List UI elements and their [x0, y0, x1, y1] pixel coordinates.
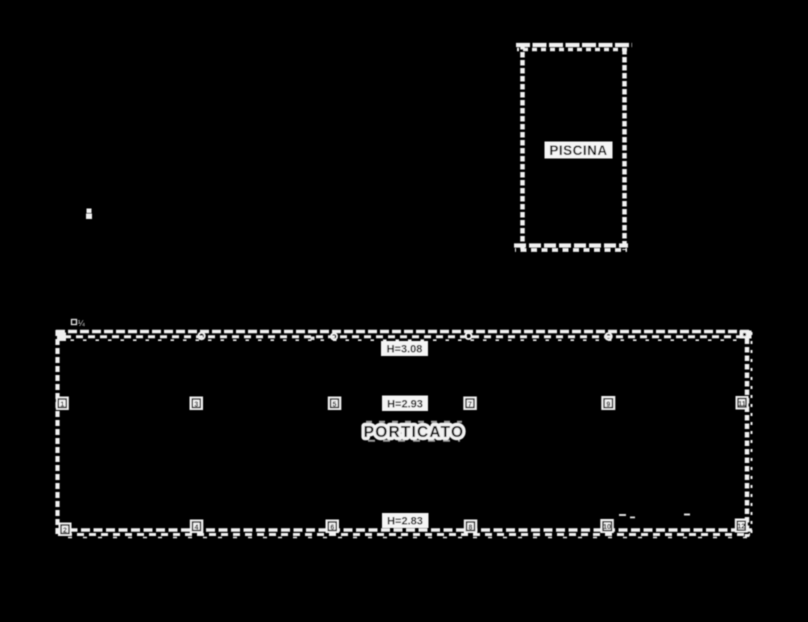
svg-text:9: 9 [606, 402, 610, 409]
svg-text:7: 7 [468, 402, 472, 409]
svg-text:12: 12 [737, 524, 745, 531]
svg-text:1: 1 [60, 402, 64, 409]
svg-text:8: 8 [469, 525, 473, 532]
svg-text:PISCINA: PISCINA [549, 143, 607, 158]
svg-text:6: 6 [330, 525, 334, 532]
svg-text:5: 5 [333, 402, 337, 409]
svg-text:¼: ¼ [78, 319, 85, 328]
svg-text:2: 2 [63, 528, 67, 535]
svg-text:3: 3 [194, 402, 198, 409]
svg-text:PORTICATO: PORTICATO [364, 424, 465, 441]
svg-text:H=2.83: H=2.83 [387, 516, 423, 528]
svg-text:4: 4 [195, 525, 199, 532]
svg-text:H=2.93: H=2.93 [387, 399, 423, 411]
svg-text:H=3.08: H=3.08 [387, 344, 423, 356]
svg-text:11: 11 [738, 401, 746, 408]
svg-text:10: 10 [603, 524, 611, 531]
